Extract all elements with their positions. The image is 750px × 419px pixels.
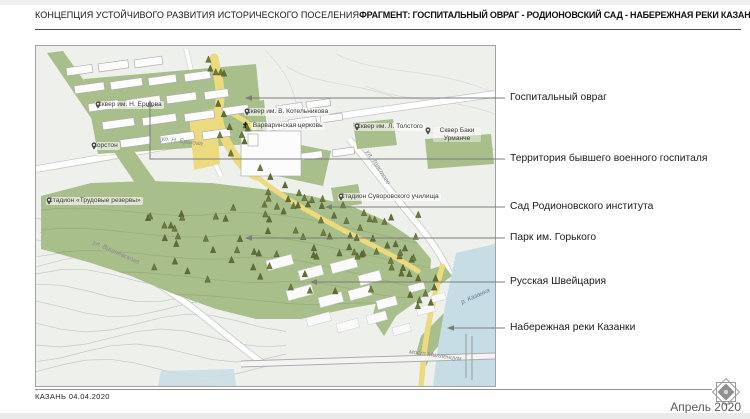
map-pin-icon [354, 123, 360, 131]
poi-varvarinskaya-church: ✝ Варваринская церковь [242, 122, 325, 130]
callout-sad-rodionovskogo: Сад Родионовского института [510, 201, 653, 213]
poi-skver-kotelnikova: Сквер им. В. Котельникова [244, 108, 330, 116]
poi-skver-tolstogo: Сквер им. Л. Толстого [354, 123, 425, 131]
callout-naberezhnaya-kazanki: Набережная реки Казанки [510, 322, 635, 334]
callout-gospitalny-ovrag: Госпитальный овраг [510, 92, 607, 104]
map-pin-icon [46, 197, 52, 205]
poi-skver-ershova: Сквер им. Н. Ершова [95, 101, 164, 109]
poi-stadion-trudovye-rezervy: Стадион «Трудовые резервы» [46, 197, 143, 205]
presentation-slide: КОНЦЕПЦИЯ УСТОЙЧИВОГО РАЗВИТИЯ ИСТОРИЧЕС… [0, 0, 750, 419]
poi-skver-baki-urmanche: Сквер Баки Урманче [425, 127, 489, 142]
callout-voenny-gospital: Территория бывшего военного госпиталя [510, 153, 707, 165]
fragment-title: ФРАГМЕНТ: ГОСПИТАЛЬНЫЙ ОВРАГ - РОДИОНОВС… [359, 10, 750, 20]
top-edge-strip [0, 0, 750, 5]
map-pin-icon [244, 108, 250, 116]
callout-park-gorkogo: Парк им. Горького [510, 232, 596, 244]
map-pin-icon [91, 142, 97, 150]
map-pin-icon [338, 193, 344, 201]
church-cross-icon: ✝ [242, 122, 249, 130]
header-divider [35, 29, 741, 30]
map-pin-icon [425, 127, 431, 135]
slide-header: КОНЦЕПЦИЯ УСТОЙЧИВОГО РАЗВИТИЯ ИСТОРИЧЕС… [35, 10, 741, 20]
footer-divider [35, 389, 712, 390]
poi-stadion-suvorovskogo: Стадион Суворовского училища [338, 193, 441, 201]
footer-city-date: КАЗАНЬ 04.04.2020 [35, 392, 110, 401]
poi-korston: Корстон [91, 142, 120, 150]
map-artwork [36, 46, 495, 386]
footer-month: Апрель 2020 [670, 400, 741, 414]
concept-title: КОНЦЕПЦИЯ УСТОЙЧИВОГО РАЗВИТИЯ ИСТОРИЧЕС… [35, 10, 359, 20]
map-pin-icon [95, 101, 101, 109]
callout-russkaya-shveytsariya: Русская Швейцария [510, 276, 606, 288]
bottom-edge-strip [0, 413, 750, 419]
axonometric-map: Сквер им. Н. Ершова Корстон Сквер им. В.… [35, 45, 496, 387]
